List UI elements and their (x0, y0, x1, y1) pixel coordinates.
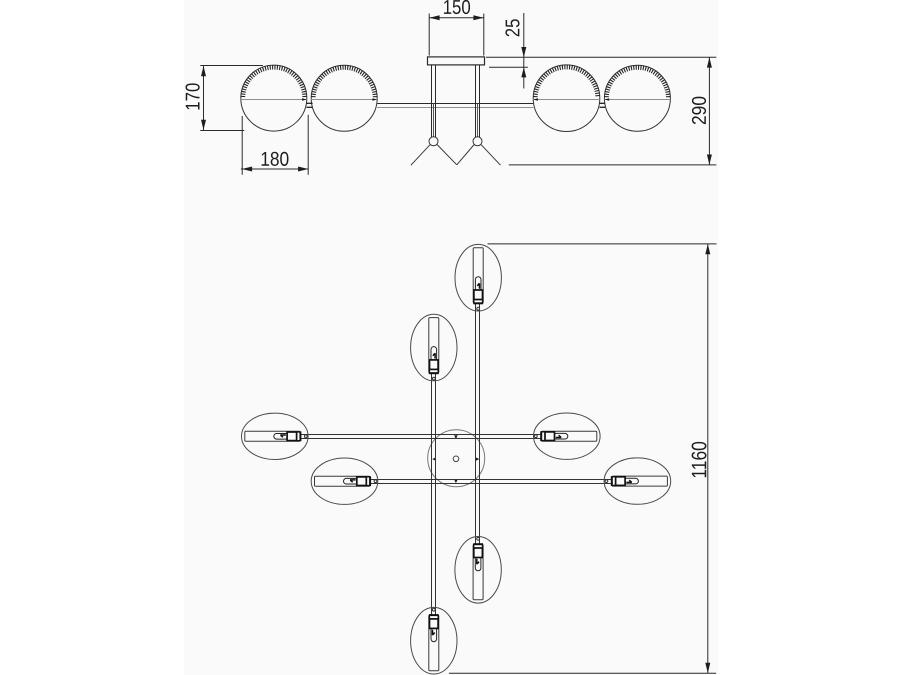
svg-text:1160: 1160 (688, 441, 711, 479)
svg-text:25: 25 (502, 19, 524, 38)
svg-text:150: 150 (443, 0, 471, 19)
svg-text:170: 170 (182, 83, 204, 111)
svg-text:180: 180 (260, 149, 289, 171)
svg-text:290: 290 (689, 96, 711, 125)
